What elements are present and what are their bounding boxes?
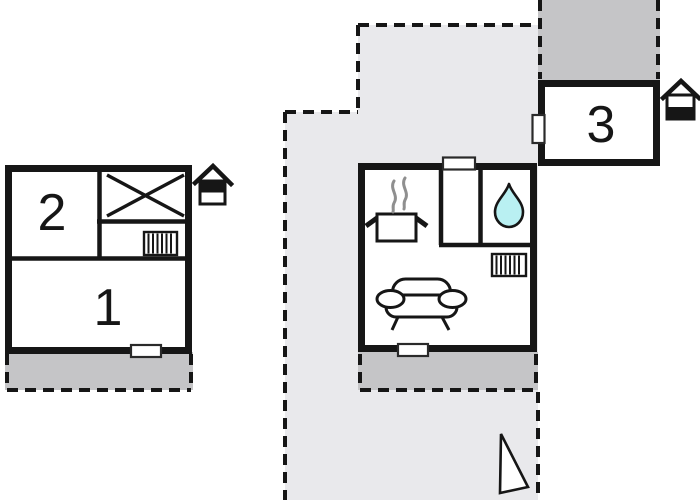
terrace-top-right [538, 0, 660, 83]
house-icon-left [195, 166, 231, 204]
floor-plan-svg: 2 1 [0, 0, 700, 500]
terrace-left-building [5, 352, 193, 390]
terrace-center-building [358, 352, 538, 390]
building-left: 2 1 [5, 165, 192, 357]
door-marker [131, 345, 161, 357]
building-center [358, 158, 537, 357]
radiator-icon [492, 254, 526, 276]
floor-plan-canvas: 2 1 [0, 0, 700, 500]
door-marker [398, 344, 428, 356]
house-icon-right [663, 81, 699, 119]
room-1-label: 1 [94, 279, 123, 337]
window-marker [443, 158, 475, 170]
room-2-label: 2 [38, 184, 67, 242]
radiator-icon [144, 232, 177, 255]
building-right: 3 [533, 80, 661, 166]
window-marker [533, 115, 545, 143]
room-3-label: 3 [587, 96, 616, 154]
